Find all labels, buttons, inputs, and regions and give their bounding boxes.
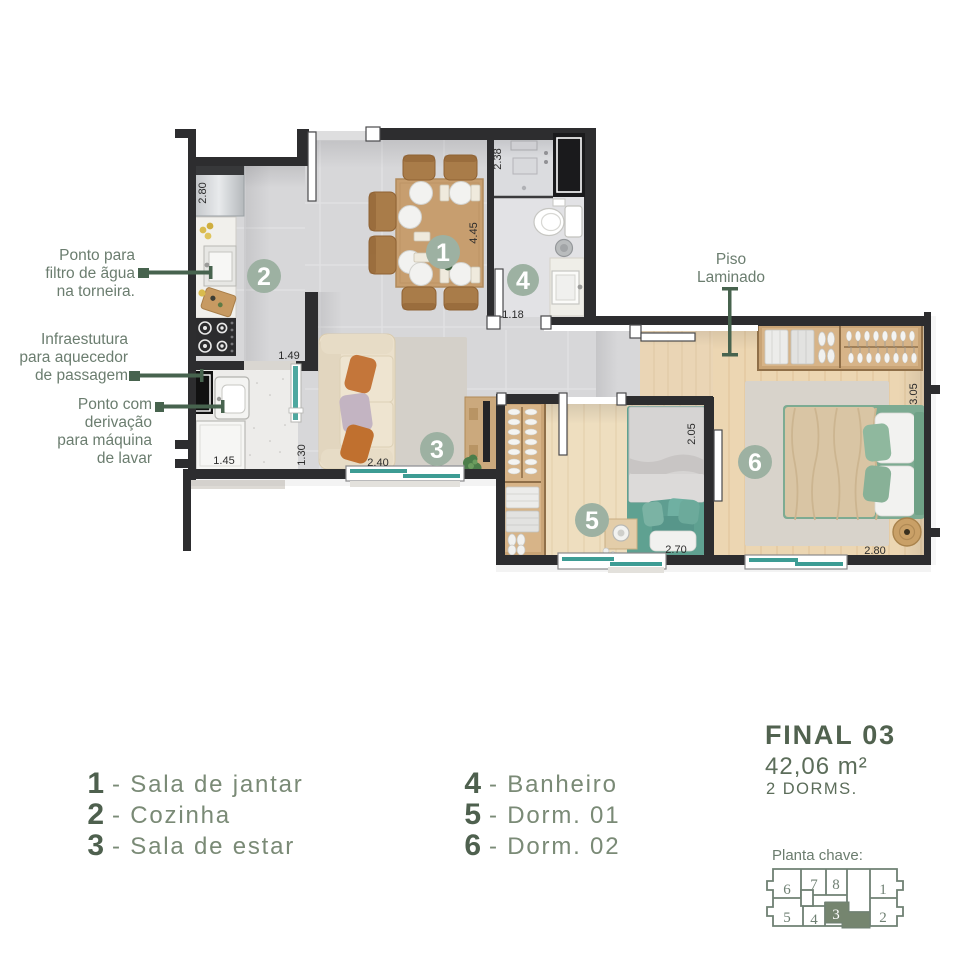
- svg-text:- Dorm. 02: - Dorm. 02: [489, 833, 620, 860]
- svg-text:2.05: 2.05: [686, 423, 698, 444]
- svg-text:1.18: 1.18: [502, 309, 523, 321]
- svg-text:3: 3: [832, 907, 840, 923]
- svg-text:1.45: 1.45: [213, 455, 234, 467]
- svg-text:3: 3: [430, 436, 444, 464]
- svg-text:Ponto com: Ponto com: [78, 396, 152, 413]
- svg-text:para máquina: para máquina: [57, 432, 152, 449]
- svg-text:2: 2: [879, 910, 887, 926]
- svg-text:5: 5: [585, 507, 599, 535]
- svg-text:- Dorm. 01: - Dorm. 01: [489, 802, 620, 829]
- svg-text:2.80: 2.80: [864, 545, 885, 557]
- svg-text:Laminado: Laminado: [697, 269, 765, 286]
- svg-text:Planta chave:: Planta chave:: [772, 847, 863, 864]
- svg-text:4: 4: [810, 912, 818, 928]
- svg-text:- Sala de estar: - Sala de estar: [112, 833, 295, 860]
- svg-text:- Sala de jantar: - Sala de jantar: [112, 771, 304, 798]
- svg-text:Piso: Piso: [716, 251, 746, 268]
- svg-text:1: 1: [87, 767, 104, 800]
- svg-text:3.05: 3.05: [908, 383, 920, 404]
- svg-text:1.30: 1.30: [296, 444, 308, 465]
- svg-text:2.80: 2.80: [197, 182, 209, 203]
- svg-text:2.70: 2.70: [665, 544, 686, 556]
- svg-text:6: 6: [464, 829, 481, 862]
- svg-text:7: 7: [810, 877, 818, 893]
- svg-text:na torneira.: na torneira.: [57, 283, 135, 300]
- svg-text:para aquecedor: para aquecedor: [19, 349, 128, 366]
- svg-text:1: 1: [879, 882, 887, 898]
- svg-text:- Banheiro: - Banheiro: [489, 771, 618, 798]
- svg-text:2 DORMS.: 2 DORMS.: [766, 780, 858, 798]
- svg-text:derivação: derivação: [85, 414, 152, 431]
- svg-text:2.40: 2.40: [367, 457, 388, 469]
- svg-text:de passagem: de passagem: [35, 367, 128, 384]
- svg-text:1: 1: [436, 239, 450, 267]
- svg-text:2: 2: [87, 798, 104, 831]
- svg-text:42,06 m²: 42,06 m²: [765, 753, 868, 780]
- svg-text:5: 5: [464, 798, 481, 831]
- svg-text:5: 5: [783, 910, 791, 926]
- svg-text:de lavar: de lavar: [97, 450, 152, 467]
- svg-text:Infraestutura: Infraestutura: [41, 331, 128, 348]
- svg-text:8: 8: [832, 877, 840, 893]
- svg-text:filtro de ãgua: filtro de ãgua: [45, 265, 135, 282]
- svg-text:6: 6: [748, 449, 762, 477]
- svg-text:6: 6: [783, 882, 791, 898]
- svg-text:4: 4: [464, 767, 481, 800]
- svg-text:- Cozinha: - Cozinha: [112, 802, 231, 829]
- svg-text:2: 2: [257, 263, 271, 291]
- svg-text:1.49: 1.49: [278, 350, 299, 362]
- svg-text:4.45: 4.45: [468, 222, 480, 243]
- svg-text:Ponto para: Ponto para: [59, 247, 135, 264]
- svg-text:4: 4: [516, 267, 530, 295]
- svg-text:2.38: 2.38: [492, 148, 504, 169]
- svg-text:FINAL 03: FINAL 03: [765, 720, 896, 750]
- svg-text:3: 3: [87, 829, 104, 862]
